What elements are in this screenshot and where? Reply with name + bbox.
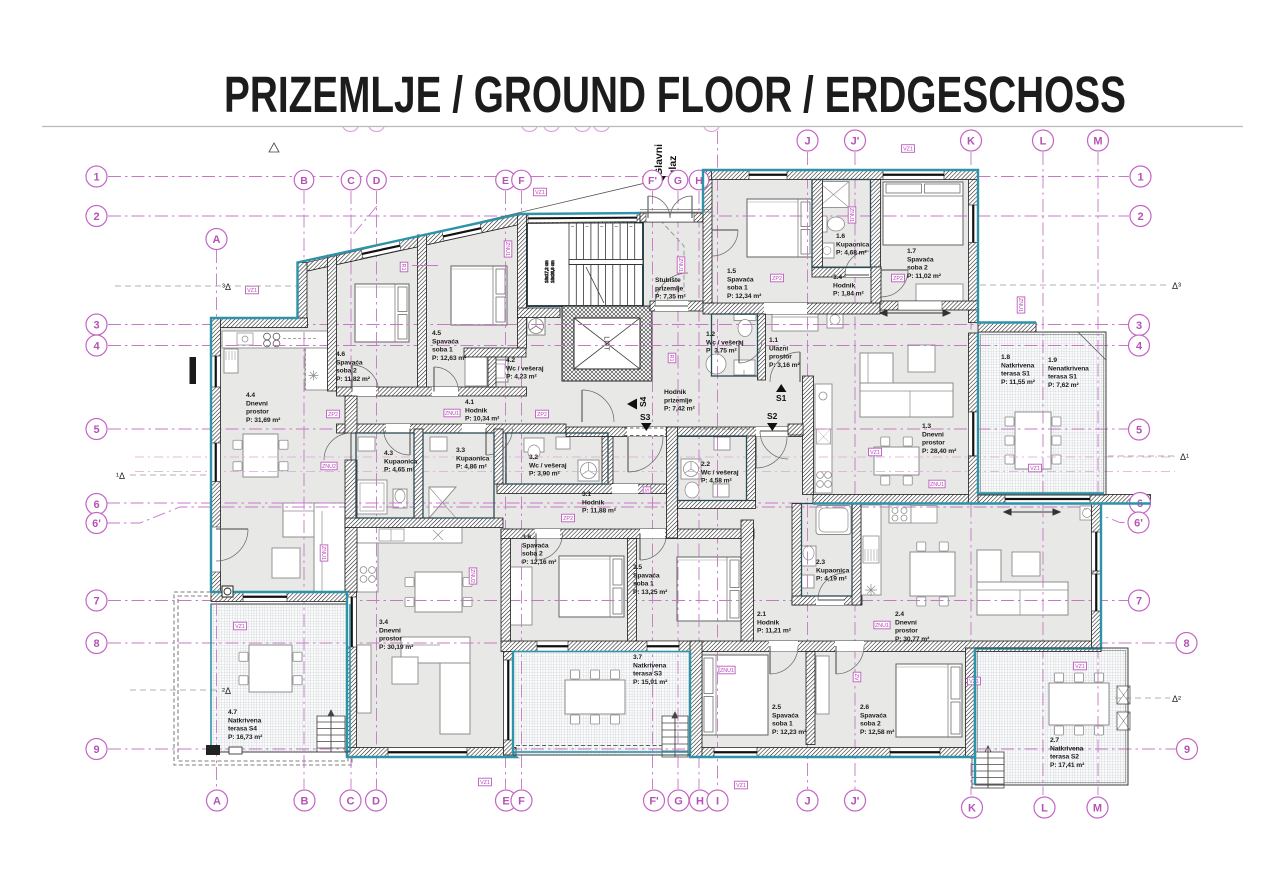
svg-text:9: 9 <box>93 744 99 756</box>
svg-text:PRIZEMLJE / GROUND FLOOR / ERD: PRIZEMLJE / GROUND FLOOR / ERDGESCHOSS <box>224 66 1126 123</box>
svg-text:18x28,6 cm: 18x28,6 cm <box>550 260 555 283</box>
svg-text:S: S <box>643 488 649 492</box>
svg-text:ZNU1: ZNU1 <box>720 668 734 674</box>
svg-text:G: G <box>674 175 682 187</box>
svg-text:3: 3 <box>93 319 99 331</box>
svg-text:3: 3 <box>1136 320 1142 332</box>
svg-text:A: A <box>213 795 221 807</box>
svg-text:VZ1: VZ1 <box>870 450 880 456</box>
svg-text:Δ³: Δ³ <box>1172 281 1181 291</box>
svg-text:VZ1: VZ1 <box>736 783 746 789</box>
svg-text:D: D <box>373 175 381 187</box>
svg-text:ZV: ZV <box>853 674 859 681</box>
svg-text:18x17,2 cm: 18x17,2 cm <box>544 260 549 283</box>
svg-text:¹Δ: ¹Δ <box>116 471 125 481</box>
svg-text:ZP2: ZP2 <box>772 276 782 282</box>
svg-text:M: M <box>1093 135 1102 147</box>
svg-text:7: 7 <box>93 595 99 607</box>
svg-text:B: B <box>300 175 308 187</box>
svg-text:J': J' <box>851 135 860 147</box>
svg-text:7: 7 <box>1136 595 1142 607</box>
svg-text:E: E <box>502 175 509 187</box>
svg-text:ZNU1: ZNU1 <box>504 242 510 256</box>
svg-text:A: A <box>213 234 221 246</box>
svg-text:E: E <box>502 795 509 807</box>
svg-text:5: 5 <box>93 424 99 436</box>
svg-text:ZP2: ZP2 <box>563 516 573 522</box>
svg-text:6': 6' <box>1134 517 1143 529</box>
svg-text:³Δ: ³Δ <box>222 282 231 292</box>
svg-text:ZP2: ZP2 <box>328 412 338 418</box>
svg-text:L: L <box>1040 135 1047 147</box>
svg-text:4: 4 <box>1136 340 1143 352</box>
svg-text:F: F <box>518 175 525 187</box>
svg-text:Δ¹: Δ¹ <box>1180 452 1189 462</box>
svg-text:2: 2 <box>1137 211 1143 223</box>
svg-text:D: D <box>372 795 380 807</box>
svg-text:C: C <box>347 795 355 807</box>
svg-text:J: J <box>804 135 810 147</box>
svg-text:ZNU1: ZNU1 <box>677 258 683 272</box>
svg-text:S4: S4 <box>638 396 648 407</box>
svg-text:2: 2 <box>93 211 99 223</box>
svg-text:F': F' <box>648 175 657 187</box>
svg-text:M: M <box>1093 802 1102 814</box>
svg-text:Δ²: Δ² <box>1172 694 1181 704</box>
svg-text:ZNU1: ZNU1 <box>848 208 854 222</box>
svg-text:VZ1: VZ1 <box>535 190 545 196</box>
svg-text:ZNU1: ZNU1 <box>1017 298 1023 312</box>
svg-text:ZNU2: ZNU2 <box>469 569 475 583</box>
svg-text:6: 6 <box>93 499 99 511</box>
svg-text:B: B <box>301 795 309 807</box>
svg-text:K: K <box>968 802 976 814</box>
svg-text:1: 1 <box>93 171 99 183</box>
svg-text:5: 5 <box>1136 424 1142 436</box>
svg-text:VZ1: VZ1 <box>235 624 245 630</box>
svg-text:VZ1: VZ1 <box>903 147 913 153</box>
svg-text:²Δ: ²Δ <box>222 686 231 696</box>
svg-text:S3: S3 <box>640 412 651 422</box>
svg-text:ZP2: ZP2 <box>537 412 547 418</box>
svg-text:VZ1: VZ1 <box>1030 466 1040 472</box>
svg-text:F': F' <box>649 795 659 807</box>
svg-text:LIFT: LIFT <box>603 336 610 351</box>
svg-text:VZ1: VZ1 <box>480 780 490 786</box>
svg-text:L: L <box>1041 802 1048 814</box>
svg-text:6': 6' <box>92 518 101 530</box>
svg-text:VZ1: VZ1 <box>1075 664 1085 670</box>
svg-text:ZNU1: ZNU1 <box>320 546 326 560</box>
svg-text:ZNU1: ZNU1 <box>875 623 889 629</box>
svg-text:ZNU1: ZNU1 <box>445 411 459 417</box>
svg-text:S1: S1 <box>776 393 787 403</box>
svg-text:R1: R1 <box>668 355 674 362</box>
svg-text:G: G <box>674 795 683 807</box>
svg-text:ZNU2: ZNU2 <box>322 464 336 470</box>
svg-text:J: J <box>804 795 810 807</box>
svg-text:C: C <box>347 175 355 187</box>
svg-text:ZP2: ZP2 <box>893 276 903 282</box>
svg-text:F: F <box>518 795 525 807</box>
svg-text:H: H <box>696 795 704 807</box>
svg-text:J': J' <box>851 795 860 807</box>
svg-text:9: 9 <box>1184 744 1190 756</box>
svg-text:I: I <box>716 795 719 807</box>
svg-text:S2: S2 <box>767 411 778 421</box>
svg-text:1: 1 <box>1137 171 1143 183</box>
svg-text:4: 4 <box>93 340 100 352</box>
svg-text:VZ1: VZ1 <box>247 288 257 294</box>
svg-text:8: 8 <box>1183 638 1189 650</box>
svg-text:H: H <box>695 175 703 187</box>
svg-text:ZNU1: ZNU1 <box>930 482 944 488</box>
svg-text:K: K <box>967 135 975 147</box>
svg-text:R1: R1 <box>400 264 406 271</box>
svg-text:8: 8 <box>93 638 99 650</box>
